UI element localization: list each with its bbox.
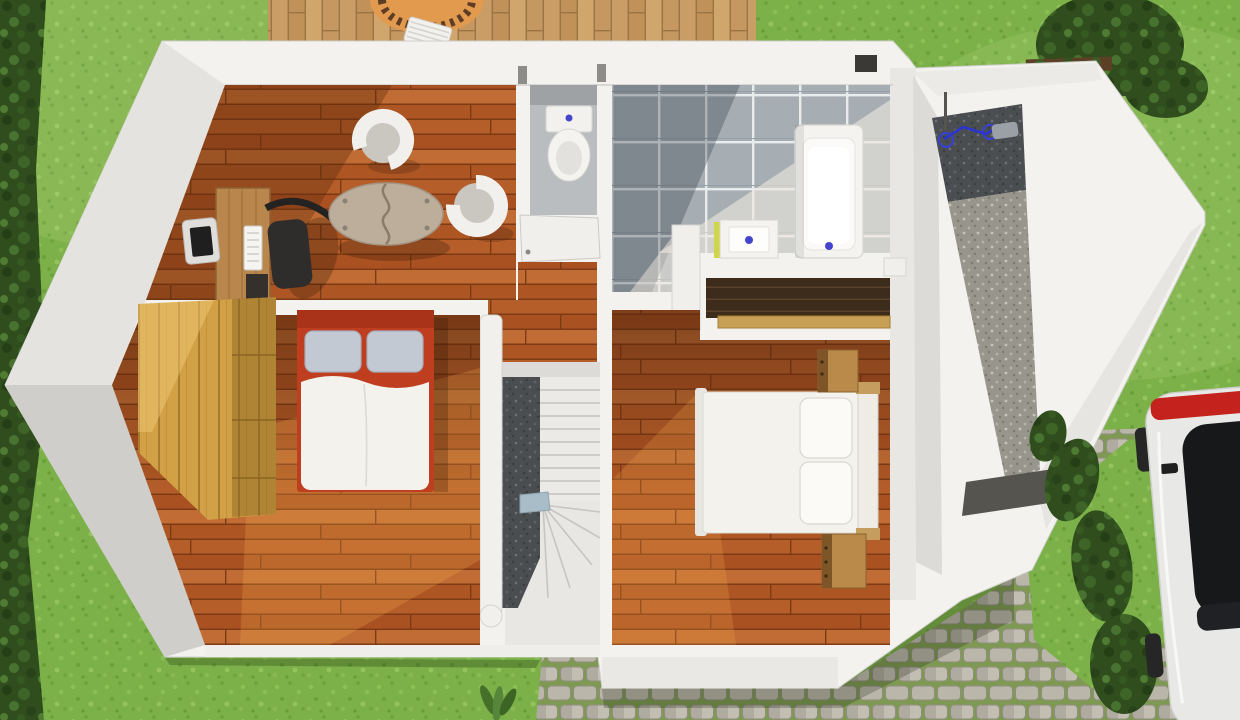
bed-pillow: [800, 462, 852, 524]
floor-plan-render: [0, 0, 1240, 720]
bed-pillow: [800, 398, 852, 458]
headboard-trim: [856, 382, 880, 394]
closet-divider: [884, 258, 906, 276]
wall-pillar-west: [518, 66, 527, 84]
wc-door: [520, 215, 600, 262]
stair-top-landing: [488, 362, 600, 377]
wall-face-east: [890, 68, 916, 600]
car-mirror: [1160, 463, 1179, 475]
washbasin: [714, 220, 778, 258]
flush-button: [566, 115, 573, 122]
stand-pipe: [944, 92, 947, 130]
stair-railing: [480, 315, 502, 627]
bed-shadow: [434, 318, 448, 492]
annex-wall-west-face: [913, 75, 942, 575]
wardrobe-shade-side: [232, 297, 276, 517]
nightstand-south: [822, 534, 866, 588]
wall-pillar-east: [597, 64, 606, 82]
wc-door-handle: [526, 250, 531, 255]
desk-drawer: [246, 274, 268, 300]
scene-canvas: [0, 0, 1240, 720]
double-bed-east: [695, 382, 880, 540]
room-stair-hall: [480, 262, 600, 645]
bed-headboard: [858, 385, 878, 537]
bed-pillow: [367, 331, 423, 372]
roof-vent: [855, 55, 877, 72]
nightstand-north: [818, 350, 858, 392]
bed-pillow: [305, 331, 361, 372]
toilet: [546, 106, 592, 181]
stair-straight-flight: [540, 377, 600, 501]
washbasin-drain: [745, 236, 753, 244]
porch-step: [602, 657, 838, 688]
monitor-screen: [190, 226, 214, 257]
bathtub: [795, 125, 863, 258]
double-bed-west: [297, 310, 448, 492]
bathtub-drain: [825, 242, 833, 250]
oval-split-table: [329, 183, 450, 261]
closet-shelf-plank: [718, 316, 890, 328]
room-wc: [520, 85, 600, 262]
metal-step: [520, 492, 550, 513]
wall-face-south: [205, 645, 600, 657]
computer-monitor: [182, 217, 220, 264]
computer-desk: [216, 188, 270, 304]
bed-headboard-red: [297, 310, 434, 328]
room-bedroom-east: [612, 310, 890, 645]
wooden-deck: [268, 0, 756, 42]
closet-interior: [706, 278, 890, 318]
